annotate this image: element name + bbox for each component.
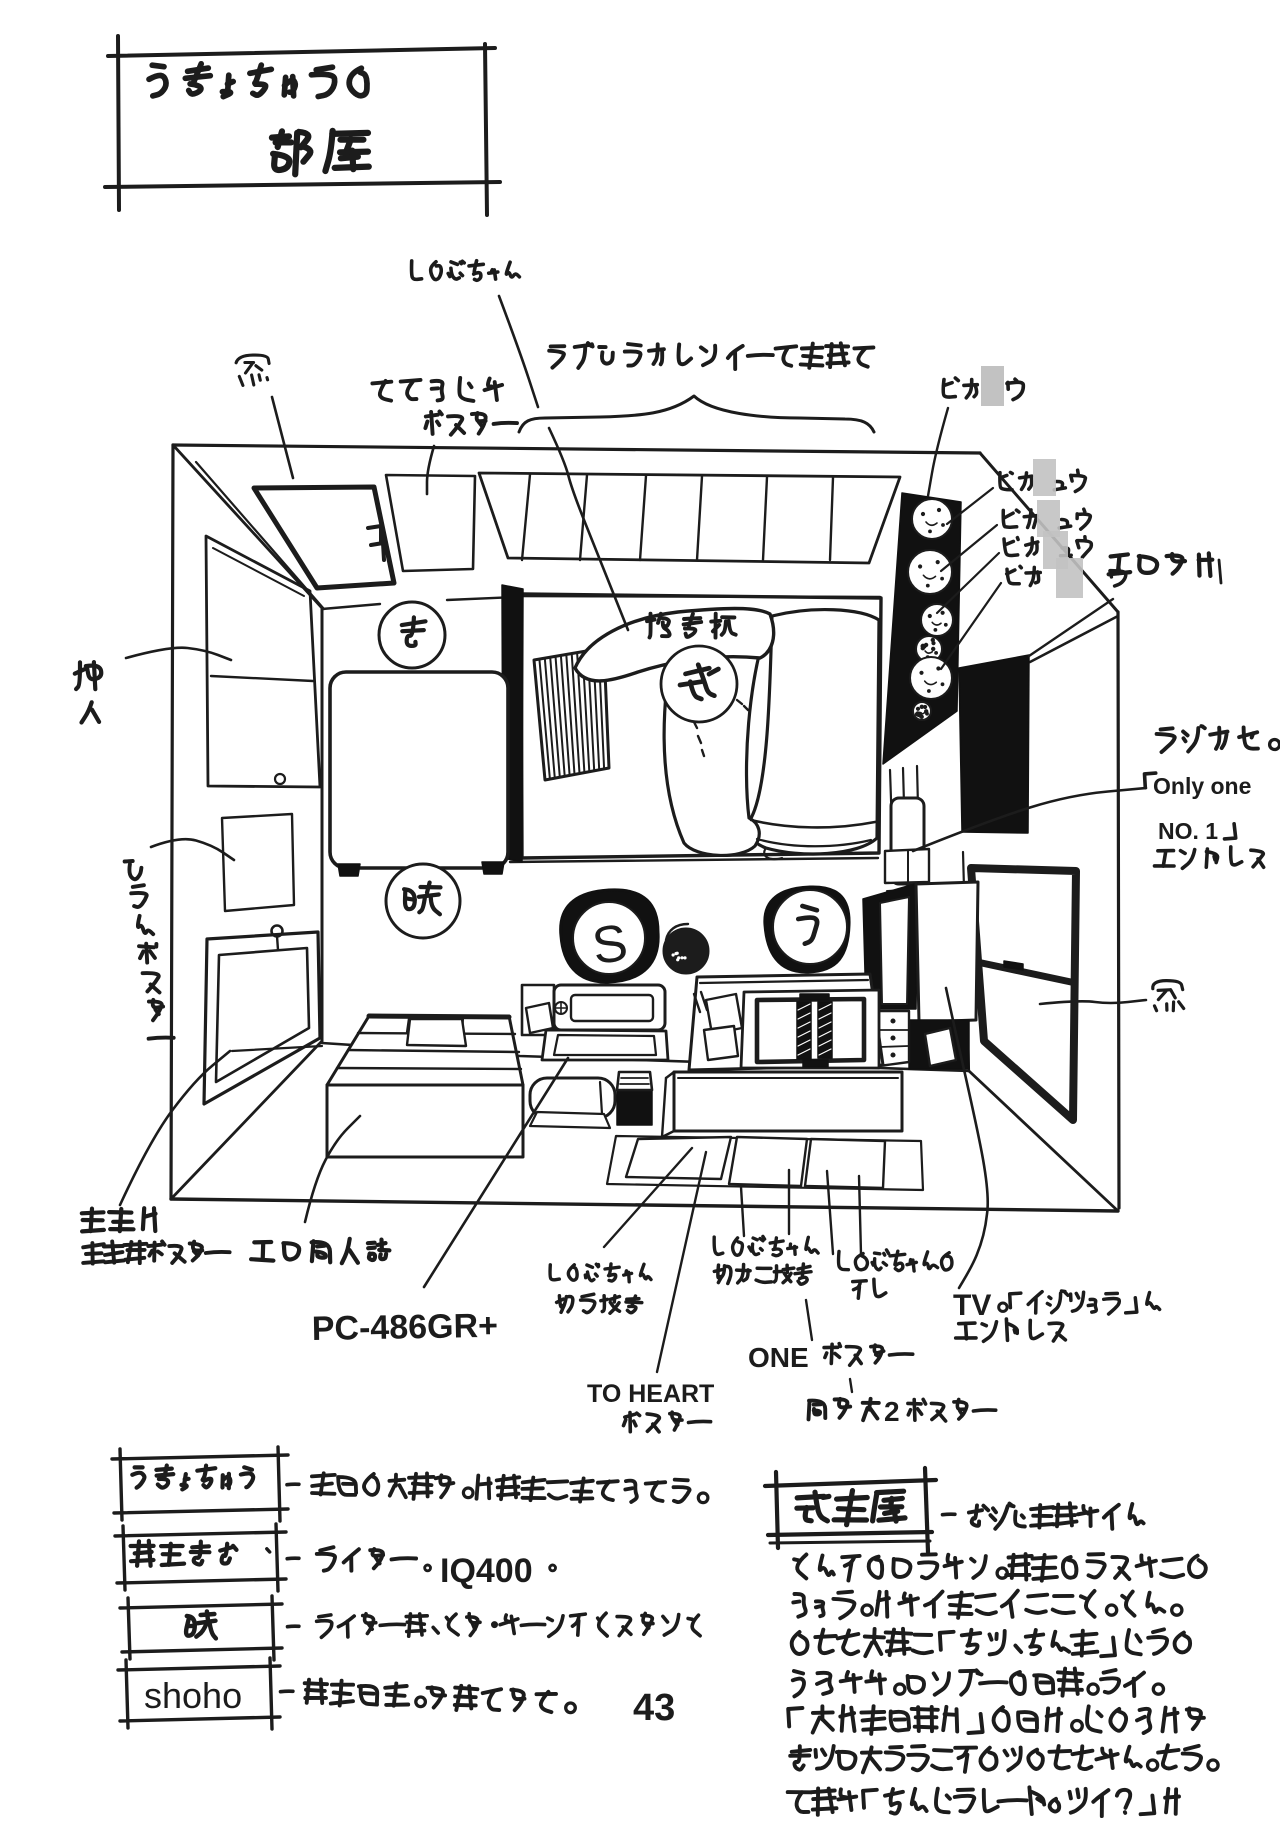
svg-text:PC-486GR+: PC-486GR+: [311, 1307, 498, 1348]
svg-text:TO HEART: TO HEART: [587, 1380, 714, 1408]
svg-text:NO. 1: NO. 1: [1158, 818, 1218, 844]
svg-text:IQ400: IQ400: [440, 1552, 533, 1590]
svg-text:TV: TV: [953, 1289, 991, 1322]
svg-text:Only one: Only one: [1153, 773, 1251, 799]
svg-text:43: 43: [633, 1687, 675, 1729]
svg-text:ONE: ONE: [748, 1342, 809, 1373]
svg-text:shoho: shoho: [144, 1675, 242, 1716]
svg-text:2: 2: [884, 1396, 900, 1427]
